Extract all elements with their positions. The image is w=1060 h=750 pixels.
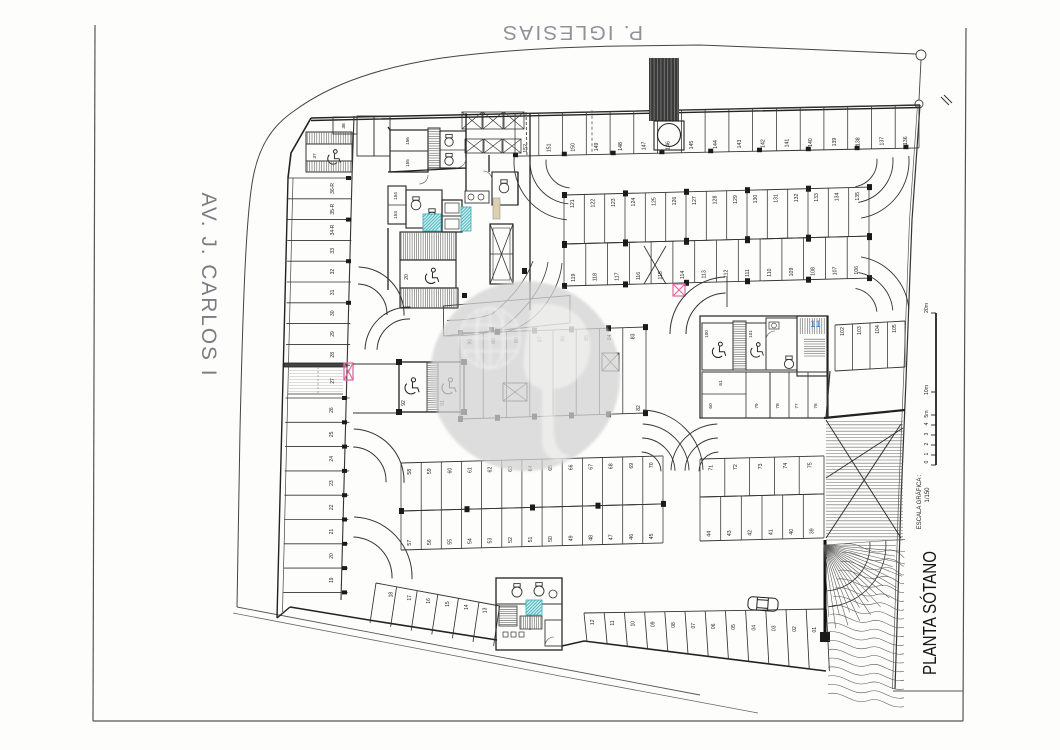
svg-text:31: 31 [330, 289, 336, 295]
svg-text:12: 12 [590, 619, 596, 625]
svg-text:134: 134 [835, 192, 841, 201]
svg-text:156: 156 [405, 137, 410, 145]
svg-text:142: 142 [761, 139, 767, 148]
svg-text:61: 61 [718, 380, 724, 386]
svg-text:AV. J. CARLOS I: AV. J. CARLOS I [197, 193, 220, 378]
svg-text:10m: 10m [924, 385, 930, 395]
svg-text:148: 148 [618, 142, 624, 151]
svg-text:23: 23 [329, 480, 335, 486]
svg-text:73: 73 [758, 463, 764, 469]
svg-text:25: 25 [329, 431, 335, 437]
svg-text:0: 0 [924, 460, 930, 463]
svg-text:126: 126 [672, 197, 678, 206]
svg-text:05: 05 [731, 624, 737, 630]
svg-text:02: 02 [792, 626, 798, 632]
svg-text:34-R: 34-R [330, 224, 336, 235]
svg-text:45: 45 [649, 533, 655, 539]
svg-text:141: 141 [784, 139, 790, 148]
svg-text:145: 145 [689, 141, 695, 150]
svg-text:27: 27 [330, 378, 336, 384]
svg-text:4: 4 [924, 422, 930, 425]
svg-text:04: 04 [751, 625, 757, 631]
svg-text:15: 15 [445, 601, 451, 607]
svg-text:1: 1 [924, 452, 930, 455]
svg-text:129: 129 [733, 195, 739, 204]
svg-text:136: 136 [903, 136, 909, 145]
svg-text:42: 42 [748, 530, 754, 536]
svg-text:69: 69 [629, 463, 635, 469]
svg-text:47: 47 [609, 534, 615, 540]
svg-text:2: 2 [924, 442, 930, 445]
svg-text:PLANTA SÓTANO: PLANTA SÓTANO [919, 551, 940, 675]
svg-text:41: 41 [768, 529, 774, 535]
svg-text:57: 57 [407, 540, 413, 546]
svg-text:152: 152 [523, 144, 529, 153]
svg-text:122: 122 [591, 199, 597, 208]
svg-text:139: 139 [832, 138, 838, 147]
svg-text:58: 58 [407, 469, 413, 475]
svg-text:60: 60 [708, 403, 714, 409]
svg-text:66: 66 [568, 464, 574, 470]
svg-text:114: 114 [680, 271, 686, 279]
svg-text:133: 133 [814, 193, 820, 202]
svg-text:17: 17 [407, 595, 413, 601]
svg-text:48: 48 [589, 535, 595, 541]
svg-text:116: 116 [636, 272, 642, 280]
svg-text:151: 151 [547, 143, 553, 152]
svg-text:78: 78 [775, 403, 781, 409]
svg-text:130: 130 [753, 195, 759, 204]
svg-text:82: 82 [636, 405, 642, 411]
svg-text:37: 37 [312, 153, 318, 159]
svg-text:105: 105 [892, 324, 898, 333]
svg-text:59: 59 [427, 468, 433, 474]
svg-text:33: 33 [330, 248, 336, 254]
svg-text:123: 123 [611, 198, 617, 207]
svg-text:111: 111 [745, 269, 751, 277]
svg-text:5m: 5m [924, 410, 930, 417]
svg-text:21: 21 [329, 529, 335, 535]
svg-text:128: 128 [713, 196, 719, 205]
svg-text:132: 132 [794, 193, 800, 202]
svg-text:79: 79 [754, 403, 760, 409]
svg-text:36-R: 36-R [330, 183, 336, 194]
svg-text:52: 52 [508, 537, 514, 543]
svg-text:30: 30 [330, 310, 336, 316]
svg-text:07: 07 [691, 623, 697, 629]
svg-text:67: 67 [589, 464, 595, 470]
svg-text:11: 11 [610, 620, 616, 625]
svg-text:20: 20 [404, 274, 410, 280]
svg-text:103: 103 [857, 326, 863, 335]
svg-text:127: 127 [692, 196, 698, 205]
svg-text:125: 125 [652, 197, 658, 206]
svg-text:92: 92 [401, 400, 407, 406]
svg-text:154: 154 [393, 192, 398, 200]
svg-text:40: 40 [789, 529, 795, 535]
svg-text:11: 11 [810, 319, 821, 329]
svg-text:09: 09 [651, 621, 657, 627]
svg-text:3: 3 [924, 432, 930, 435]
svg-text:76: 76 [813, 403, 819, 409]
svg-text:68: 68 [609, 463, 615, 469]
svg-text:83: 83 [630, 333, 636, 339]
svg-text:100: 100 [704, 330, 709, 338]
svg-text:20: 20 [329, 553, 335, 559]
svg-text:46: 46 [629, 534, 635, 540]
svg-text:01: 01 [812, 627, 818, 633]
svg-text:03: 03 [772, 625, 778, 631]
svg-text:49: 49 [568, 535, 574, 541]
svg-text:53: 53 [488, 538, 494, 544]
svg-text:26: 26 [329, 407, 335, 413]
svg-text:62: 62 [488, 467, 494, 473]
svg-text:61: 61 [468, 467, 474, 473]
svg-text:121: 121 [570, 199, 576, 208]
svg-text:124: 124 [631, 198, 637, 207]
svg-text:109: 109 [789, 268, 795, 277]
svg-text:138: 138 [856, 137, 862, 146]
svg-text:137: 137 [879, 137, 885, 146]
svg-text:108: 108 [811, 267, 817, 276]
svg-text:55: 55 [447, 539, 453, 545]
svg-text:28: 28 [330, 352, 336, 358]
svg-text:117: 117 [615, 272, 621, 280]
svg-text:110: 110 [767, 268, 773, 276]
svg-text:P. IGLESIAS: P. IGLESIAS [501, 21, 643, 43]
svg-text:113: 113 [702, 270, 708, 278]
svg-text:77: 77 [794, 403, 800, 409]
svg-text:10: 10 [630, 621, 636, 627]
svg-text:101: 101 [748, 330, 753, 338]
svg-text:1/150: 1/150 [925, 487, 931, 503]
svg-text:72: 72 [733, 464, 739, 470]
svg-text:39: 39 [810, 528, 816, 534]
svg-text:13: 13 [483, 607, 489, 613]
svg-text:54: 54 [468, 538, 474, 544]
svg-text:135: 135 [855, 192, 861, 201]
svg-text:29: 29 [330, 331, 336, 337]
svg-text:44: 44 [706, 531, 712, 537]
svg-text:24: 24 [329, 456, 335, 462]
svg-text:75: 75 [808, 462, 814, 468]
svg-text:119: 119 [571, 273, 577, 281]
svg-text:118: 118 [593, 273, 599, 281]
svg-text:51: 51 [528, 537, 534, 543]
svg-text:146: 146 [666, 141, 672, 150]
svg-text:149: 149 [594, 142, 600, 151]
svg-text:50: 50 [548, 536, 554, 542]
svg-text:71: 71 [708, 465, 714, 471]
svg-text:70: 70 [649, 462, 655, 468]
svg-text:131: 131 [774, 194, 780, 203]
svg-text:ESCALA GRÁFICA :: ESCALA GRÁFICA : [916, 474, 923, 529]
svg-text:150: 150 [570, 143, 576, 152]
svg-text:35-R: 35-R [330, 203, 336, 214]
svg-text:19: 19 [329, 577, 335, 583]
svg-text:38: 38 [341, 123, 347, 129]
svg-text:22: 22 [329, 504, 335, 510]
svg-text:16: 16 [426, 598, 432, 604]
svg-text:155: 155 [405, 159, 410, 167]
svg-text:106: 106 [854, 266, 860, 275]
svg-text:18: 18 [388, 592, 394, 598]
svg-text:56: 56 [427, 539, 433, 545]
svg-text:143: 143 [737, 140, 743, 149]
svg-text:60: 60 [447, 468, 453, 474]
svg-text:107: 107 [832, 266, 838, 275]
svg-text:102: 102 [840, 327, 846, 336]
svg-text:32: 32 [330, 269, 336, 275]
svg-text:74: 74 [783, 463, 789, 469]
svg-text:08: 08 [671, 622, 677, 628]
svg-text:104: 104 [875, 325, 881, 334]
svg-text:144: 144 [713, 140, 719, 149]
svg-text:153: 153 [393, 211, 398, 219]
svg-text:20m: 20m [924, 303, 930, 313]
svg-text:140: 140 [808, 138, 814, 147]
svg-text:06: 06 [711, 623, 717, 629]
svg-text:147: 147 [642, 141, 648, 150]
svg-text:43: 43 [727, 530, 733, 536]
svg-text:14: 14 [464, 604, 470, 610]
